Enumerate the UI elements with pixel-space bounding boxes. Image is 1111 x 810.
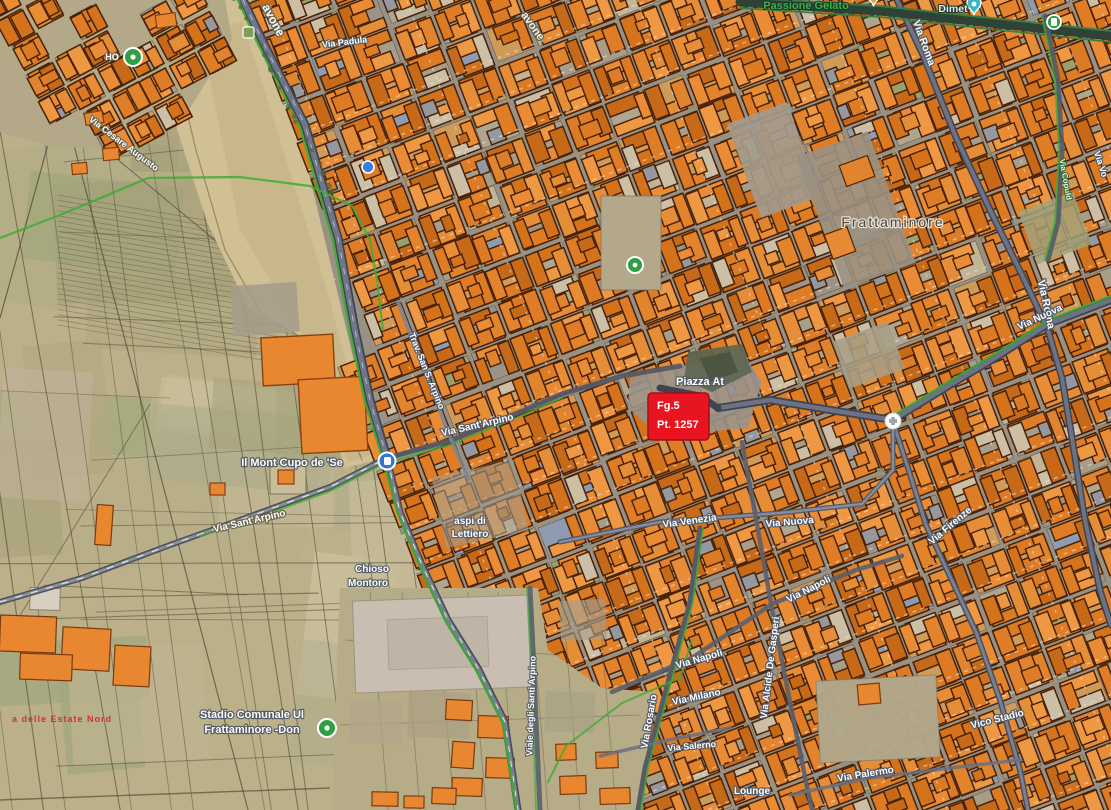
svg-text:Dimet: Dimet <box>938 3 968 15</box>
svg-text:Frattaminore -Don: Frattaminore -Don <box>204 724 300 736</box>
svg-text:Pt. 1257: Pt. 1257 <box>657 419 699 431</box>
svg-text:HO: HO <box>105 52 119 62</box>
svg-text:Passione Gelato: Passione Gelato <box>763 0 849 12</box>
svg-text:Il Mont Cupo de 'Se: Il Mont Cupo de 'Se <box>241 457 343 469</box>
svg-text:Lettiero: Lettiero <box>452 529 489 540</box>
svg-text:Piazza At: Piazza At <box>676 376 724 388</box>
svg-text:aspi di: aspi di <box>454 516 486 527</box>
svg-text:Chioso: Chioso <box>355 564 389 575</box>
svg-text:Fg.5: Fg.5 <box>657 400 680 412</box>
svg-text:Stadio Comunale Ul: Stadio Comunale Ul <box>200 709 304 721</box>
svg-text:a delle Estate Nord: a delle Estate Nord <box>12 714 112 724</box>
svg-text:Montoro: Montoro <box>348 578 388 589</box>
svg-text:Frattaminore: Frattaminore <box>841 214 944 230</box>
svg-text:Lounge: Lounge <box>734 786 771 797</box>
